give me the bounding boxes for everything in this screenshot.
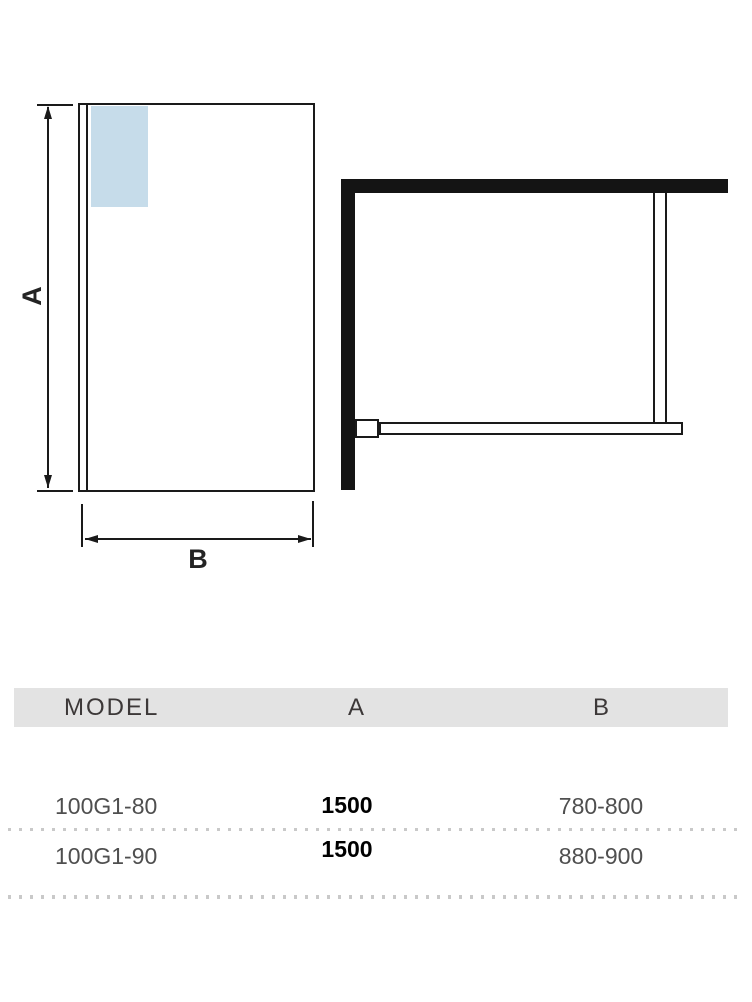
dim-b-line — [85, 538, 311, 540]
cell-a: 1500 — [297, 792, 397, 819]
dim-a-arrow-down-icon — [44, 475, 52, 488]
glass-panel-topview-line-outer — [653, 193, 655, 423]
cell-b: 780-800 — [546, 793, 656, 820]
dim-a-label: A — [10, 274, 54, 318]
dim-b-label: B — [178, 544, 218, 575]
cell-b: 880-900 — [546, 843, 656, 870]
wall-bracket — [355, 419, 379, 438]
glass-tint-area — [91, 106, 148, 207]
dim-a-extension-tick-bottom — [37, 490, 73, 492]
support-bar — [379, 422, 683, 435]
dim-a-arrow-up-icon — [44, 106, 52, 119]
dim-b-extension-tick-left — [81, 504, 83, 547]
header-model: MODEL — [64, 688, 159, 727]
dim-a-extension-tick-top — [37, 104, 73, 106]
cell-a: 1500 — [297, 836, 397, 863]
header-b: B — [579, 688, 623, 727]
dim-b-arrow-left-icon — [85, 535, 98, 543]
cell-model: 100G1-80 — [55, 793, 157, 820]
wall-top — [341, 179, 728, 193]
row-divider — [8, 895, 745, 899]
dim-b-arrow-right-icon — [298, 535, 311, 543]
cell-model: 100G1-90 — [55, 843, 157, 870]
header-a: A — [334, 688, 378, 727]
row-divider — [8, 828, 745, 831]
wall-profile-line — [86, 105, 88, 490]
wall-side — [341, 179, 355, 490]
glass-panel-topview-line-inner — [665, 193, 667, 423]
shower-screen-spec-sheet: A B MODEL A B 100G1-80 1500 780-800 100G… — [0, 0, 752, 1002]
dim-b-extension-tick-right — [312, 501, 314, 547]
